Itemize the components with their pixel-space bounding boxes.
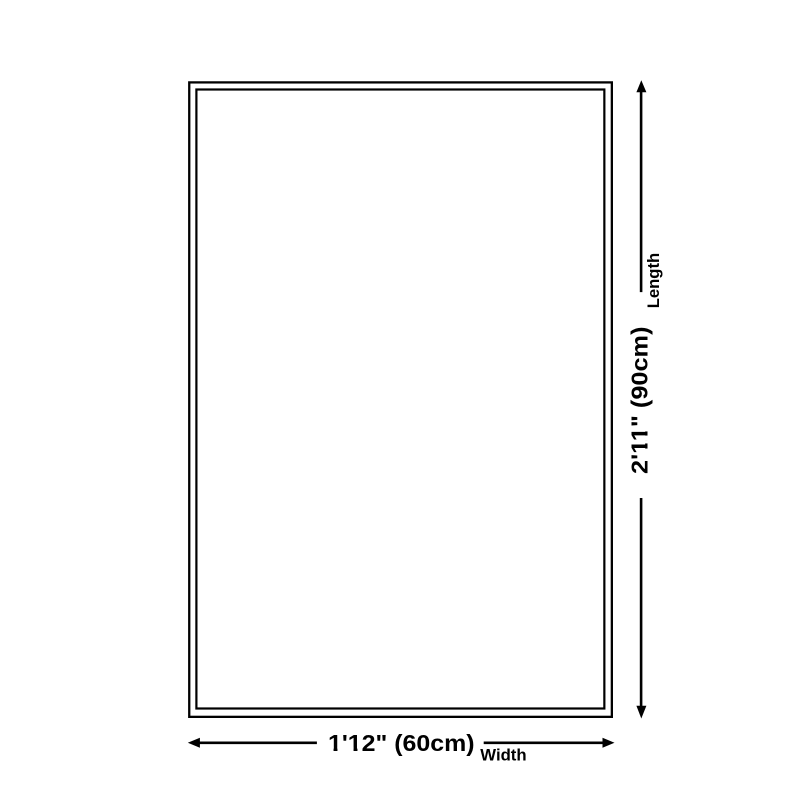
svg-text:Length: Length xyxy=(645,253,663,309)
svg-text:Width: Width xyxy=(480,747,526,765)
